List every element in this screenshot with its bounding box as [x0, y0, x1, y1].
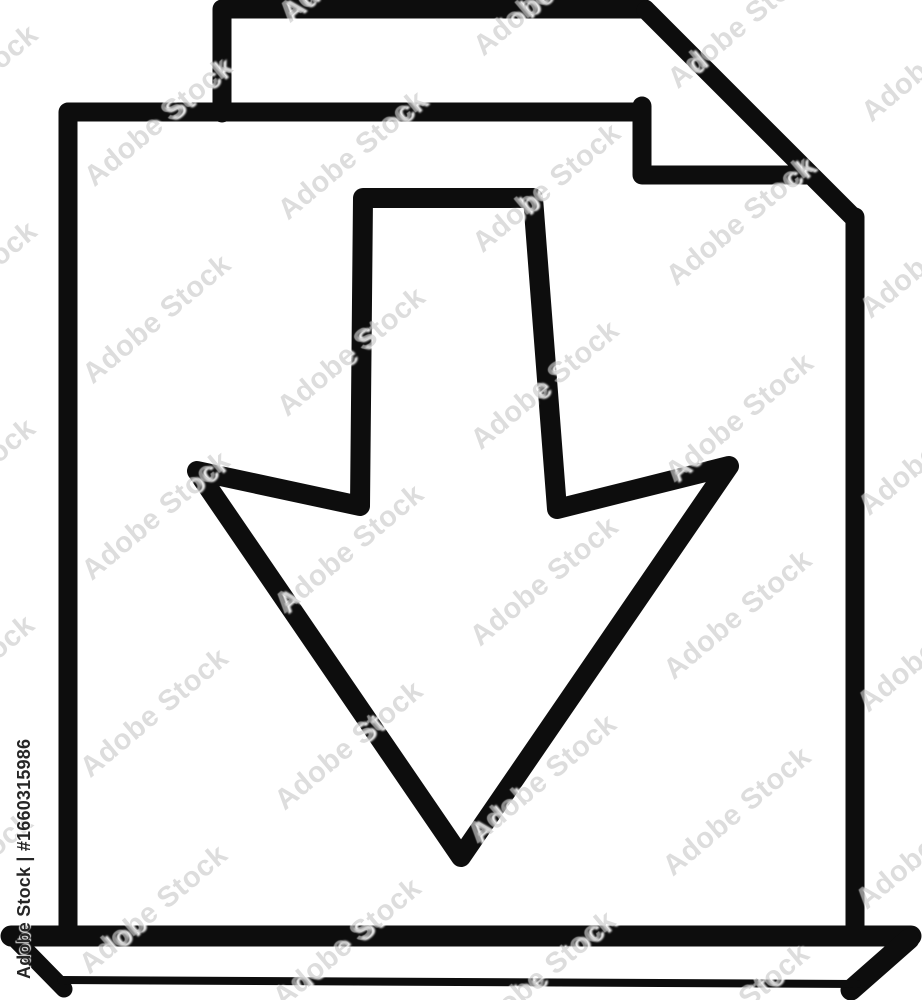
tray-bottom-edge: [61, 980, 857, 984]
page-tab-outline: [222, 9, 645, 113]
download-arrow: [197, 198, 729, 857]
watermark-id-text: Adobe Stock | #1660315986: [14, 739, 35, 979]
stock-image-preview: Adobe StockAdobe StockAdobe StockAdobe S…: [0, 0, 922, 1000]
document-download-icon: [0, 0, 922, 1000]
page-fold-diagonal: [646, 10, 855, 219]
